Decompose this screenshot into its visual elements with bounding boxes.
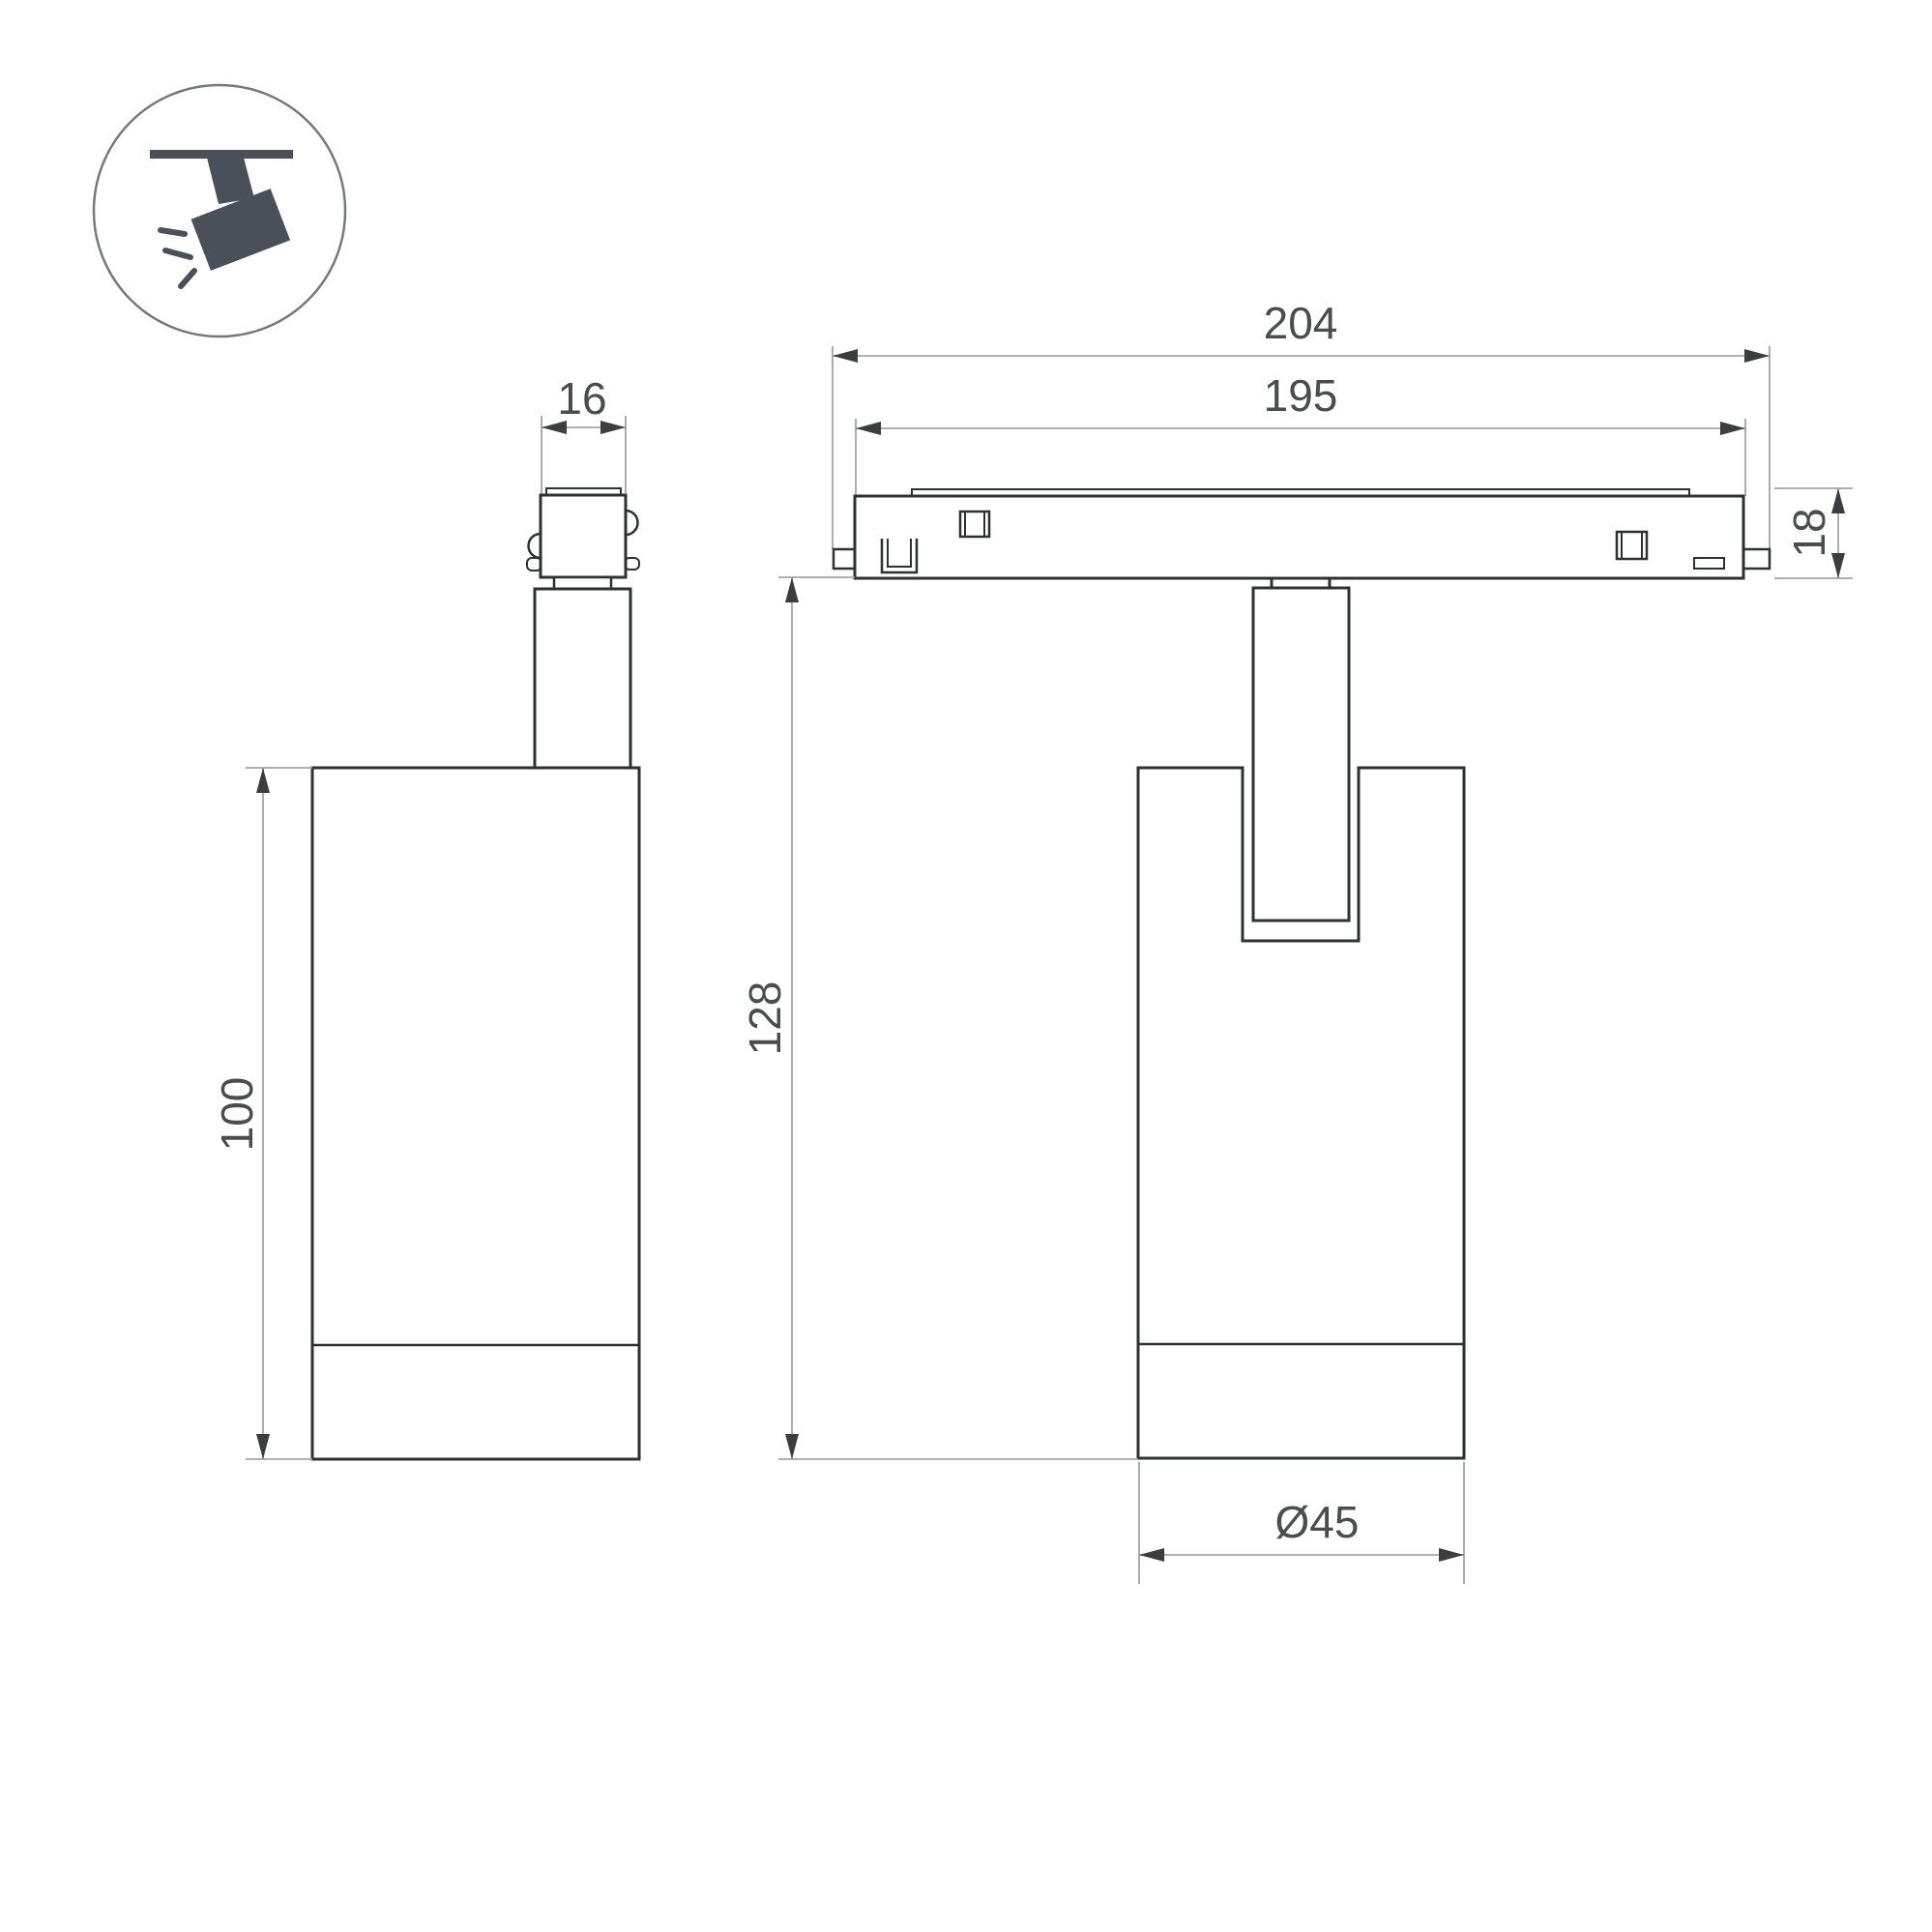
side-view: 16 100 (212, 373, 639, 1459)
dim-label-128: 128 (740, 981, 790, 1056)
track-right-tab (1743, 549, 1770, 569)
legend-track-bar (150, 150, 293, 159)
dim-label-204: 204 (1264, 298, 1338, 348)
track-adapter (541, 495, 626, 577)
arrowhead-left (833, 349, 858, 363)
track-spotlight-icon (94, 85, 345, 337)
connector-left-bump (528, 534, 541, 558)
dim-label-195: 195 (1264, 370, 1338, 421)
dim-label-45: Ø45 (1275, 1497, 1360, 1547)
dim-label-18: 18 (1784, 508, 1834, 557)
stem-side (535, 589, 630, 769)
arrowhead-up (785, 577, 799, 602)
arrowhead-down (256, 1434, 270, 1459)
stem-front (1253, 588, 1349, 921)
arrowhead-left (856, 422, 881, 435)
dim-label-100: 100 (212, 1077, 262, 1152)
lamp-body-side (312, 768, 639, 1459)
arrowhead-down (785, 1434, 799, 1459)
arrowhead-right (1439, 1548, 1464, 1562)
drawing-canvas: 16 100 204 195 (0, 0, 1932, 1932)
front-view: 204 195 128 (740, 298, 1853, 1584)
dimension-drawing: 16 100 204 195 (0, 0, 1932, 1932)
dim-label-16: 16 (557, 373, 606, 424)
arrowhead-right (1720, 422, 1745, 435)
track-left-tab (834, 549, 855, 569)
adapter-neck (554, 577, 611, 589)
arrowhead-up (256, 768, 270, 793)
arrowhead-left (1139, 1548, 1164, 1562)
arrowhead-right (1744, 349, 1770, 363)
connector-right-bump (626, 511, 638, 535)
